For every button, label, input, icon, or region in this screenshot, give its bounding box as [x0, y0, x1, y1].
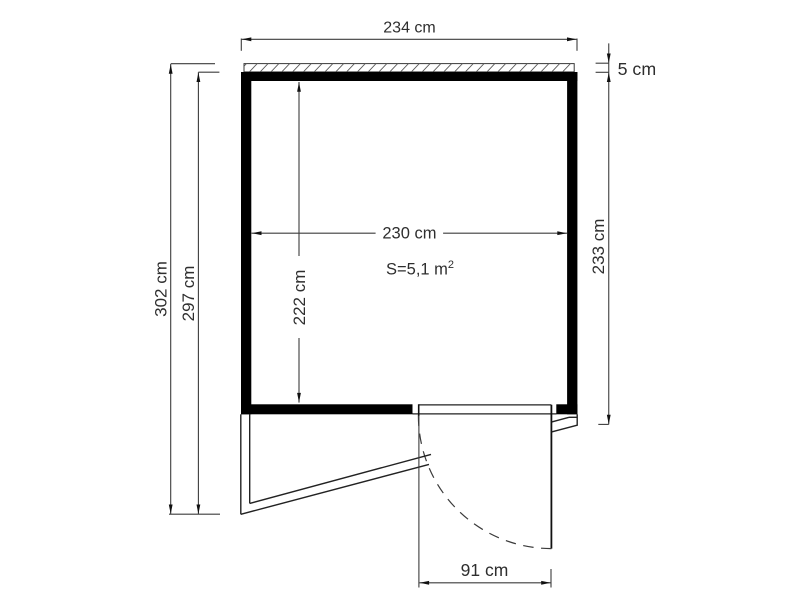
- svg-text:5 cm: 5 cm: [618, 59, 657, 79]
- svg-text:91 cm: 91 cm: [461, 560, 509, 580]
- svg-text:233 cm: 233 cm: [589, 219, 608, 275]
- svg-text:234 cm: 234 cm: [383, 20, 435, 37]
- svg-text:S=5,1 m2: S=5,1 m2: [386, 259, 454, 278]
- svg-text:222 cm: 222 cm: [290, 270, 309, 326]
- svg-text:230 cm: 230 cm: [382, 225, 436, 243]
- svg-text:302 cm: 302 cm: [151, 261, 170, 317]
- svg-text:297 cm: 297 cm: [179, 266, 198, 322]
